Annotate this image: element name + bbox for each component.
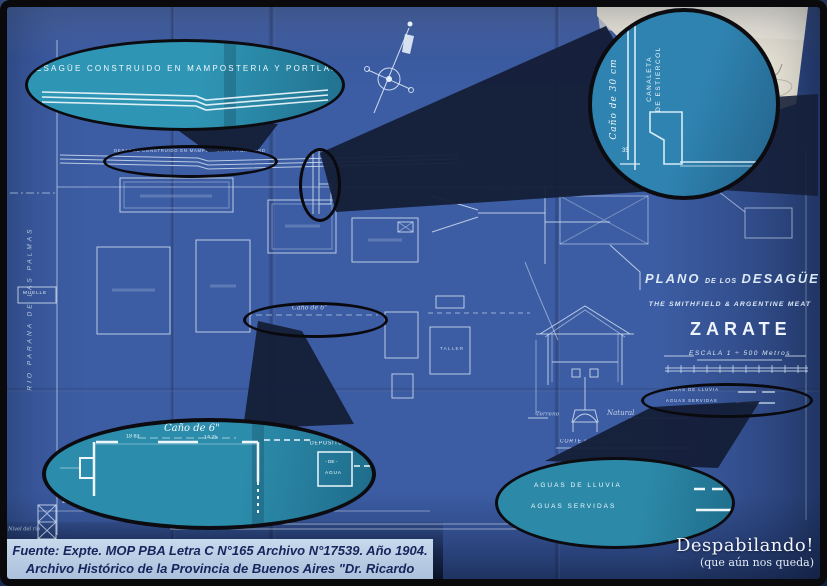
caption-line1: Fuente: Expte. MOP PBA Letra C N°165 Arc… bbox=[7, 542, 433, 560]
highlight-ellipse-drain-note bbox=[103, 145, 278, 178]
magnified-cano30-label: Caño de 30 cm bbox=[609, 34, 619, 164]
magnified-deposito-agua: AGUA bbox=[325, 471, 342, 476]
canaleta-line2: DE ESTIERCOL bbox=[654, 19, 663, 139]
magnified-legend-lines bbox=[498, 460, 732, 546]
highlight-ellipse-pipe6 bbox=[243, 302, 388, 338]
magnified-deposito-de: - DE - bbox=[325, 460, 338, 465]
magnifier-top-left: DESAGÜE CONSTRUIDO EN MAMPOSTERIA Y PORT… bbox=[25, 39, 345, 131]
highlight-ellipse-legend bbox=[641, 383, 813, 418]
magnified-dim2: 14 25 bbox=[204, 435, 218, 440]
magnified-pipe-lines bbox=[592, 12, 776, 196]
magnified-deposito-title: DEPOSITO bbox=[310, 441, 343, 446]
magnified-dim35: 35 bbox=[622, 148, 629, 154]
canaleta-line1: CANALETA bbox=[645, 19, 654, 139]
photo-frame: DESAGÜE CONSTRUIDO EN MAMPOSTERIA Y PORT… bbox=[0, 0, 827, 586]
watermark-title: Despabilando! bbox=[614, 535, 814, 556]
caption-line2: Archivo Histórico de la Provincia de Bue… bbox=[7, 560, 433, 586]
magnified-dim1: 18 83 bbox=[126, 434, 140, 439]
watermark-subtitle: (que aún nos queda) bbox=[614, 556, 814, 569]
watermark: Despabilando! (que aún nos queda) bbox=[614, 535, 814, 569]
magnified-cano6-label: Caño de 6" bbox=[164, 423, 220, 434]
highlight-ellipse-pipe bbox=[299, 148, 341, 222]
source-caption: Fuente: Expte. MOP PBA Letra C N°165 Arc… bbox=[7, 539, 433, 582]
magnifier-bottom-left: Caño de 6" 18 83 14 25 DEPOSITO - DE - A… bbox=[42, 418, 376, 530]
magnified-drain-lines bbox=[28, 42, 342, 128]
magnified-canaleta-label: CANALETA DE ESTIERCOL bbox=[645, 19, 663, 139]
magnifier-top-right: Caño de 30 cm CANALETA DE ESTIERCOL 35 bbox=[588, 8, 780, 200]
